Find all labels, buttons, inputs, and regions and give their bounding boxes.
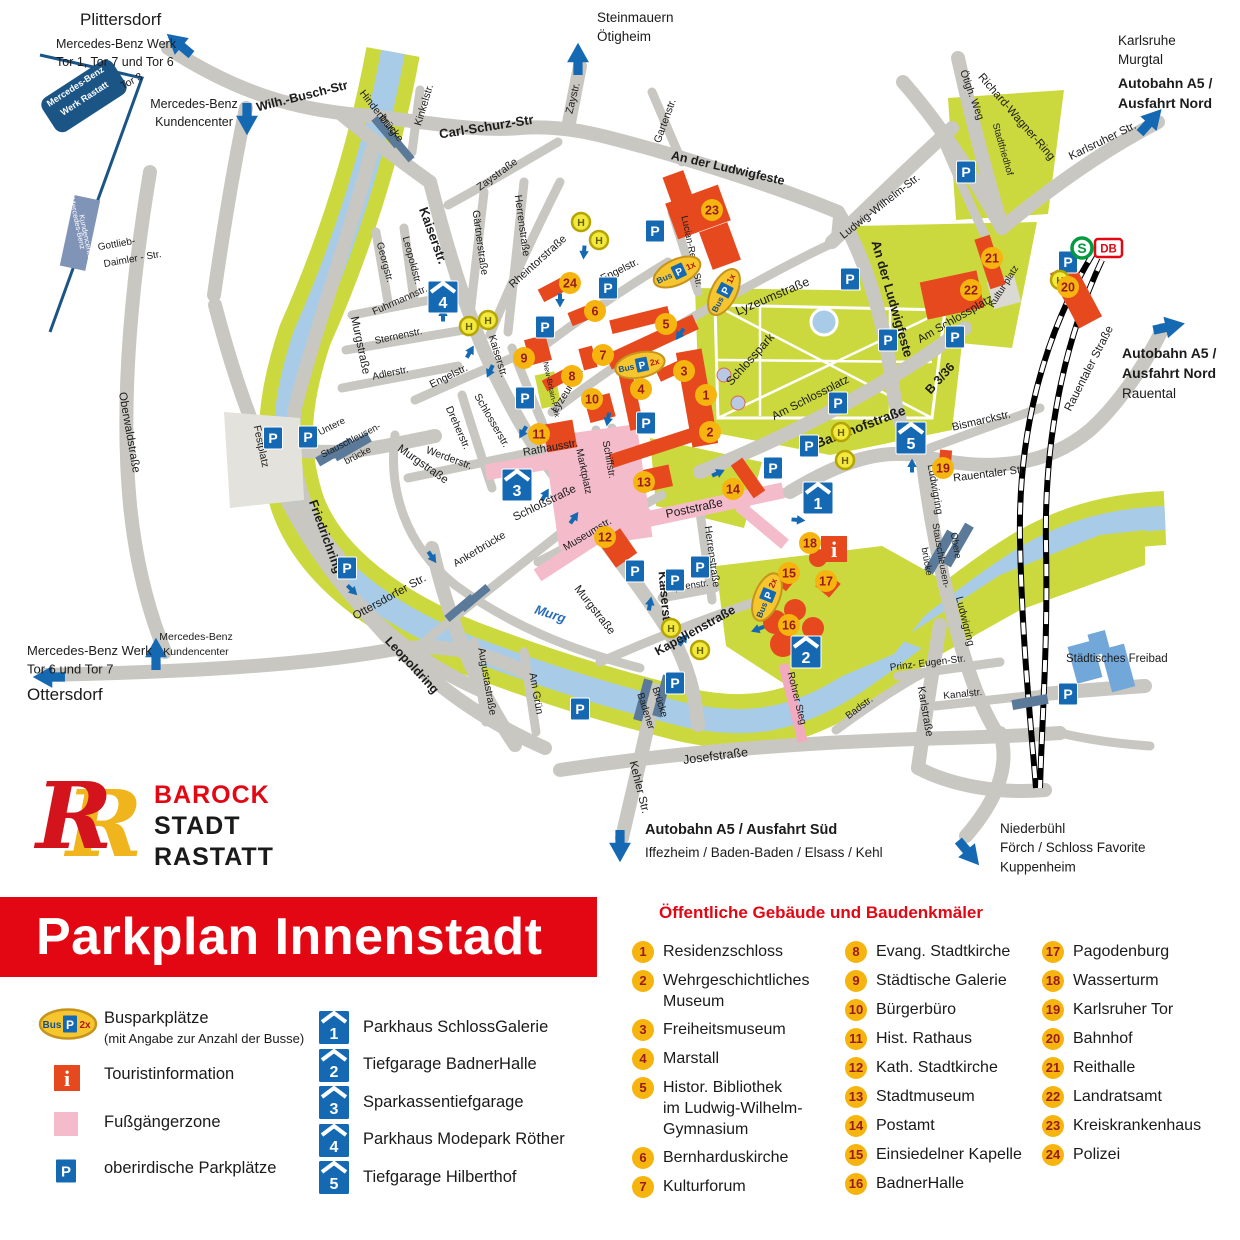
bus-stop-icon: H (572, 213, 590, 231)
svg-text:6: 6 (592, 305, 599, 319)
poi-label: Freiheitsmuseum (663, 1019, 786, 1041)
svg-text:P: P (833, 395, 842, 411)
logo-line-rastatt: RASTATT (154, 842, 274, 873)
svg-text:14: 14 (726, 483, 740, 497)
street-label: Murgstraße (572, 583, 618, 637)
parking-garage-icon: 1 (803, 482, 833, 514)
svg-text:3: 3 (330, 1101, 339, 1118)
svg-text:P: P (961, 164, 970, 180)
svg-text:H: H (841, 455, 849, 467)
poi-number-badge: 7 (632, 1176, 654, 1198)
poi-marker: 12 (594, 526, 616, 548)
surface-parking-icon: P (536, 316, 555, 338)
svg-text:H: H (667, 623, 675, 635)
poi-list-item: 6Bernharduskirche (632, 1147, 862, 1169)
map-annotation: Plittersdorf (80, 10, 162, 29)
garage-label: Tiefgarage BadnerHalle (363, 1055, 537, 1074)
bus-parking-icon: BusP2x (38, 1008, 100, 1040)
poi-list-item: 11Hist. Rathaus (845, 1028, 1075, 1050)
svg-text:13: 13 (637, 476, 651, 490)
svg-text:5: 5 (330, 1176, 339, 1193)
garage-list-item: 3Sparkassentiefgarage (318, 1085, 524, 1119)
garage-list-item: 1Parkhaus SchlossGalerie (318, 1010, 548, 1044)
poi-marker: 17 (815, 570, 837, 592)
svg-text:5: 5 (907, 436, 916, 453)
svg-text:i: i (831, 537, 837, 562)
street-label: Leopoldstr. (400, 235, 423, 285)
legend-label: Fußgängerzone (104, 1112, 221, 1132)
poi-list-column: 17Pagodenburg18Wasserturm19Karlsruher To… (1042, 941, 1240, 1173)
legend-icon-holder: BusP2x (38, 1008, 104, 1040)
poi-marker: 18 (799, 532, 821, 554)
bus-stop-icon: H (662, 619, 680, 637)
svg-text:11: 11 (532, 428, 545, 442)
poi-marker: 16 (778, 614, 800, 636)
svg-text:P: P (670, 675, 679, 691)
poi-list-item: 16BadnerHalle (845, 1173, 1075, 1195)
poi-label: Landratsamt (1073, 1086, 1162, 1108)
poi-list-item: 13Stadtmuseum (845, 1086, 1075, 1108)
poi-marker: 8 (561, 365, 583, 387)
poi-number-badge: 8 (845, 941, 867, 963)
poi-label: Residenzschloss (663, 941, 783, 963)
poi-number-badge: 15 (845, 1144, 867, 1166)
poi-number-badge: 14 (845, 1115, 867, 1137)
poi-marker: 24 (559, 272, 581, 294)
poi-list-item: 19Karlsruher Tor (1042, 999, 1240, 1021)
svg-text:P: P (630, 563, 639, 579)
legend-label: oberirdische Parkplätze (104, 1158, 276, 1178)
surface-parking-icon: P (626, 560, 645, 582)
poi-label: BadnerHalle (876, 1173, 964, 1195)
legend-item-p: Poberirdische Parkplätze (38, 1158, 276, 1184)
svg-text:2: 2 (707, 426, 714, 440)
svg-text:8: 8 (569, 370, 576, 384)
svg-text:10: 10 (585, 393, 599, 407)
svg-text:23: 23 (705, 204, 719, 218)
parking-garage-icon: 2 (318, 1048, 350, 1082)
poi-list-item: 2Wehrgeschichtliches Museum (632, 970, 862, 1012)
svg-text:22: 22 (964, 284, 978, 298)
svg-text:2: 2 (330, 1064, 339, 1081)
legend-sublabel: (mit Angabe zur Anzahl der Busse) (104, 1031, 304, 1046)
poi-marker: 5 (655, 313, 677, 335)
svg-text:16: 16 (782, 619, 796, 633)
svg-text:2: 2 (802, 650, 811, 667)
poi-list-item: 22Landratsamt (1042, 1086, 1240, 1108)
poi-marker: 13 (633, 471, 655, 493)
svg-text:P: P (575, 701, 584, 717)
poi-label: Marstall (663, 1048, 719, 1070)
poi-label: Postamt (876, 1115, 935, 1137)
legend-text-holder: Touristinformation (104, 1064, 234, 1084)
svg-text:i: i (64, 1066, 70, 1091)
svg-text:P: P (540, 319, 549, 335)
street-label: Untere (317, 415, 347, 438)
surface-parking-icon: P (829, 392, 848, 414)
svg-text:H: H (484, 315, 492, 327)
svg-text:P: P (1063, 254, 1072, 270)
poi-marker: 23 (701, 199, 723, 221)
logo-line-stadt: STADT (154, 811, 274, 842)
oneway-arrow-icon (791, 515, 806, 526)
svg-text:4: 4 (638, 383, 645, 397)
street-label: Zaystraße (475, 156, 520, 194)
legend-text-holder: Fußgängerzone (104, 1112, 221, 1132)
svg-text:3: 3 (681, 365, 688, 379)
street-label: Carl-Schurz-Str (438, 112, 535, 142)
svg-text:S: S (1077, 240, 1086, 256)
map-annotation: Mercedes-BenzKundencenter (159, 631, 233, 658)
poi-number-badge: 3 (632, 1019, 654, 1041)
poi-number-badge: 20 (1042, 1028, 1064, 1050)
svg-text:P: P (950, 329, 959, 345)
poi-number-badge: 19 (1042, 999, 1064, 1021)
poi-list-item: 10Bürgerbüro (845, 999, 1075, 1021)
poi-label: Histor. Bibliothek im Ludwig-Wilhelm- Gy… (663, 1077, 803, 1140)
poi-list-item: 5Histor. Bibliothek im Ludwig-Wilhelm- G… (632, 1077, 862, 1140)
poi-number-badge: 1 (632, 941, 654, 963)
poi-marker: 21 (981, 247, 1003, 269)
poi-label: Kulturforum (663, 1176, 746, 1198)
legend-item-bus: BusP2xBusparkplätze(mit Angabe zur Anzah… (38, 1008, 304, 1046)
poi-list-item: 21Reithalle (1042, 1057, 1240, 1079)
parking-garage-icon: 3 (502, 469, 532, 501)
surface-parking-icon: P (666, 672, 685, 694)
legend-icon-holder (38, 1112, 104, 1136)
surface-parking-icon: P (599, 277, 618, 299)
poi-list-column: 8Evang. Stadtkirche9Städtische Galerie10… (845, 941, 1075, 1202)
svg-text:P: P (268, 430, 277, 446)
map-annotation: KarlsruheMurgtal (1118, 33, 1176, 67)
garage-label: Parkhaus Modepark Röther (363, 1130, 565, 1149)
svg-text:H: H (577, 217, 585, 229)
svg-text:P: P (66, 1018, 74, 1032)
street-label: Murg (533, 602, 568, 626)
map-annotation: Rauental (1122, 386, 1176, 401)
svg-text:DB: DB (1100, 244, 1117, 256)
map-annotation: Ottersdorf (27, 685, 103, 704)
poi-number-badge: 16 (845, 1173, 867, 1195)
poi-list-item: 4Marstall (632, 1048, 862, 1070)
logo-line-barock: BAROCK (154, 780, 274, 811)
bus-stop-icon: H (479, 311, 497, 329)
garage-list-item: 5Tiefgarage Hilberthof (318, 1160, 516, 1194)
poi-marker: 20 (1057, 276, 1079, 298)
barock-stadt-rastatt-logo: R R BAROCK STADT RASTATT (36, 772, 356, 876)
poi-list-item: 18Wasserturm (1042, 970, 1240, 992)
poi-number-badge: 11 (845, 1028, 867, 1050)
svg-text:P: P (845, 271, 854, 287)
poi-number-badge: 12 (845, 1057, 867, 1079)
logo-mark-red: R (36, 770, 112, 862)
poi-label: Polizei (1073, 1144, 1120, 1166)
poi-list-item: 17Pagodenburg (1042, 941, 1240, 963)
svg-text:Bus: Bus (43, 1020, 62, 1031)
surface-parking-icon: P (38, 1158, 100, 1184)
poi-list-item: 24Polizei (1042, 1144, 1240, 1166)
svg-text:P: P (641, 415, 650, 431)
legend-item-info: iTouristinformation (38, 1064, 234, 1092)
poi-number-badge: 2 (632, 970, 654, 992)
svg-text:3: 3 (513, 483, 522, 500)
parking-garage-icon: 4 (318, 1123, 350, 1157)
legend-icon-holder: P (38, 1158, 104, 1184)
legend-label: Busparkplätze (104, 1008, 304, 1028)
svg-text:P: P (768, 460, 777, 476)
poi-number-badge: 13 (845, 1086, 867, 1108)
poi-label: Einsiedelner Kapelle (876, 1144, 1022, 1166)
map-annotation: Städtisches Freibad (1066, 653, 1168, 665)
pedestrian-zone-swatch (54, 1112, 78, 1136)
poi-marker: 1 (695, 384, 717, 406)
oneway-arrow-icon (579, 245, 590, 260)
poi-label: Wehrgeschichtliches Museum (663, 970, 809, 1012)
map-annotation: Autobahn A5 /Ausfahrt Nord (1118, 75, 1212, 111)
oneway-arrow-icon (555, 294, 565, 308)
surface-parking-icon: P (646, 220, 665, 242)
legend-item-zone: Fußgängerzone (38, 1112, 221, 1136)
tourist-info-icon: i (38, 1064, 100, 1092)
schlosspark-pond (811, 309, 837, 335)
poi-list-item: 12Kath. Stadtkirche (845, 1057, 1075, 1079)
poi-marker: 6 (584, 300, 606, 322)
tourist-info-icon: i (821, 536, 847, 562)
poi-list-item: 23Kreiskrankenhaus (1042, 1115, 1240, 1137)
svg-text:P: P (670, 572, 679, 588)
svg-text:12: 12 (598, 531, 612, 545)
svg-text:P: P (650, 223, 659, 239)
map-annotation: NiederbühlFörch / Schloss FavoriteKuppen… (1000, 821, 1146, 874)
garage-label: Tiefgarage Hilberthof (363, 1168, 516, 1187)
poi-number-badge: 9 (845, 970, 867, 992)
poi-label: Städtische Galerie (876, 970, 1007, 992)
poi-marker: 11 (528, 423, 550, 445)
map-annotation: Iffezheim / Baden-Baden / Elsass / Kehl (645, 845, 883, 860)
parkplan-rastatt-page: { "banner": { "title": "Parkplan Innenst… (0, 0, 1240, 1240)
parking-garage-icon: 2 (791, 636, 821, 668)
svg-text:9: 9 (521, 352, 528, 366)
city-map: Wilh.-Busch-StrHindenburg-brückeKinkelst… (0, 0, 1240, 900)
svg-text:17: 17 (819, 575, 833, 589)
svg-text:P: P (695, 559, 704, 575)
poi-number-badge: 6 (632, 1147, 654, 1169)
poi-marker: 14 (722, 478, 744, 500)
surface-parking-icon: P (571, 698, 590, 720)
poi-label: Karlsruher Tor (1073, 999, 1173, 1021)
bus-stop-icon: H (832, 423, 850, 441)
surface-parking-icon: P (957, 161, 976, 183)
poi-list-heading: Öffentliche Gebäude und Baudenkmäler (659, 903, 983, 923)
poi-marker: 2 (699, 421, 721, 443)
poi-label: Bernharduskirche (663, 1147, 788, 1169)
parking-garage-icon: 1 (318, 1010, 350, 1044)
map-annotation: Mercedes-BenzKundencenter (150, 97, 238, 129)
legend-text-holder: oberirdische Parkplätze (104, 1158, 276, 1178)
poi-label: Hist. Rathaus (876, 1028, 972, 1050)
poi-list-item: 14Postamt (845, 1115, 1075, 1137)
poi-marker: 22 (960, 279, 982, 301)
poi-list-item: 20Bahnhof (1042, 1028, 1240, 1050)
parking-garage-icon: 5 (318, 1160, 350, 1194)
poi-number-badge: 23 (1042, 1115, 1064, 1137)
surface-parking-icon: P (841, 268, 860, 290)
poi-marker: 3 (673, 360, 695, 382)
poi-label: Kreiskrankenhaus (1073, 1115, 1201, 1137)
svg-text:24: 24 (563, 277, 577, 291)
svg-text:1: 1 (814, 496, 823, 513)
poi-label: Reithalle (1073, 1057, 1135, 1079)
svg-text:19: 19 (936, 462, 950, 476)
svg-text:P: P (1063, 686, 1072, 702)
svg-text:H: H (837, 427, 845, 439)
poi-list-item: 9Städtische Galerie (845, 970, 1075, 992)
legend-text-holder: Busparkplätze(mit Angabe zur Anzahl der … (104, 1008, 304, 1046)
poi-label: Bürgerbüro (876, 999, 956, 1021)
garage-label: Sparkassentiefgarage (363, 1093, 524, 1112)
poi-list-item: 3Freiheitsmuseum (632, 1019, 862, 1041)
garage-label: Parkhaus SchlossGalerie (363, 1018, 548, 1037)
svg-text:4: 4 (439, 295, 448, 312)
svg-text:18: 18 (803, 537, 817, 551)
surface-parking-icon: P (299, 426, 318, 448)
svg-text:H: H (696, 645, 704, 657)
surface-parking-icon: P (946, 326, 965, 348)
garage-list-item: 4Parkhaus Modepark Röther (318, 1123, 565, 1157)
poi-number-badge: 10 (845, 999, 867, 1021)
poi-marker: 15 (778, 562, 800, 584)
poi-marker: 19 (932, 457, 954, 479)
poi-label: Pagodenburg (1073, 941, 1169, 963)
bus-stop-icon: H (691, 641, 709, 659)
svg-text:H: H (465, 321, 473, 333)
surface-parking-icon: P (800, 435, 819, 457)
poi-marker: 10 (581, 388, 603, 410)
svg-text:21: 21 (985, 252, 999, 266)
poi-list-item: 7Kulturforum (632, 1176, 862, 1198)
svg-text:7: 7 (600, 349, 607, 363)
svg-text:P: P (603, 280, 612, 296)
poi-number-badge: 21 (1042, 1057, 1064, 1079)
surface-parking-icon: P (691, 556, 710, 578)
surface-parking-icon: P (516, 387, 535, 409)
map-title-banner: Parkplan Innenstadt (0, 897, 597, 977)
bus-stop-icon: H (836, 451, 854, 469)
legend-label: Touristinformation (104, 1064, 234, 1084)
parking-garage-icon: 3 (318, 1085, 350, 1119)
surface-parking-icon: P (666, 569, 685, 591)
poi-marker: 7 (592, 344, 614, 366)
poi-list-column: 1Residenzschloss2Wehrgeschichtliches Mus… (632, 941, 862, 1205)
map-annotation: SteinmauernÖtigheim (597, 10, 674, 44)
parking-garage-icon: 4 (428, 281, 458, 313)
svg-text:15: 15 (782, 567, 796, 581)
poi-number-badge: 4 (632, 1048, 654, 1070)
surface-parking-icon: P (1059, 683, 1078, 705)
bus-stop-icon: H (590, 231, 608, 249)
svg-text:P: P (883, 332, 892, 348)
surface-parking-icon: P (264, 427, 283, 449)
legend-icon-holder: i (38, 1064, 104, 1092)
garage-list-item: 2Tiefgarage BadnerHalle (318, 1048, 537, 1082)
street-label: Ankerbrücke (451, 529, 508, 570)
poi-list-item: 15Einsiedelner Kapelle (845, 1144, 1075, 1166)
poi-number-badge: 5 (632, 1077, 654, 1099)
bus-stop-icon: H (460, 317, 478, 335)
parking-garage-icon: 5 (896, 422, 926, 454)
svg-text:H: H (595, 235, 603, 247)
svg-text:P: P (520, 390, 529, 406)
poi-number-badge: 18 (1042, 970, 1064, 992)
poi-label: Evang. Stadtkirche (876, 941, 1010, 963)
svg-text:P: P (342, 560, 351, 576)
poi-marker: 9 (513, 347, 535, 369)
svg-text:P: P (303, 429, 312, 445)
poi-label: Bahnhof (1073, 1028, 1133, 1050)
poi-list-item: 1Residenzschloss (632, 941, 862, 963)
surface-parking-icon: P (338, 557, 357, 579)
poi-number-badge: 22 (1042, 1086, 1064, 1108)
svg-text:4: 4 (330, 1139, 339, 1156)
poi-label: Stadtmuseum (876, 1086, 975, 1108)
svg-text:2x: 2x (79, 1020, 91, 1031)
surface-parking-icon: P (637, 412, 656, 434)
svg-text:5: 5 (663, 318, 670, 332)
map-annotation: Mercedes-Benz WerkTor 1, Tor 7 und Tor 6 (56, 37, 177, 69)
surface-parking-icon: P (764, 457, 783, 479)
poi-label: Wasserturm (1073, 970, 1159, 992)
poi-marker: 4 (630, 378, 652, 400)
surface-parking-icon: P (879, 329, 898, 351)
poi-label: Kath. Stadtkirche (876, 1057, 998, 1079)
map-annotation: Autobahn A5 / Ausfahrt Süd (645, 822, 837, 838)
page-title: Parkplan Innenstadt (0, 897, 597, 977)
poi-number-badge: 24 (1042, 1144, 1064, 1166)
svg-text:P: P (61, 1164, 71, 1181)
poi-number-badge: 17 (1042, 941, 1064, 963)
sbahn-db-icons: SDB (1072, 238, 1122, 258)
poi-list-item: 8Evang. Stadtkirche (845, 941, 1075, 963)
street-label: Gottlieb- (97, 236, 136, 253)
svg-text:1: 1 (703, 389, 710, 403)
svg-text:20: 20 (1061, 281, 1075, 295)
svg-text:1: 1 (330, 1026, 339, 1043)
svg-text:P: P (804, 438, 813, 454)
